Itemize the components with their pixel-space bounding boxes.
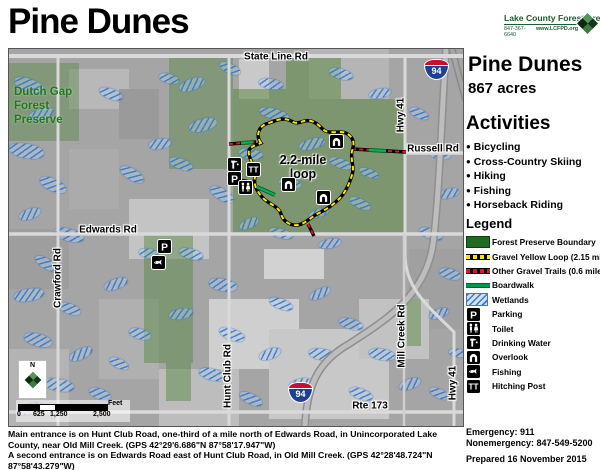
edwards-rd-label: Edwards Rd — [79, 225, 137, 236]
parking-marker-icon: P — [157, 239, 172, 254]
nonemergency-number: Nonemergency: 847-549-5200 — [466, 438, 593, 449]
wetlands-swatch — [466, 293, 488, 306]
agency-name: Lake County Forest Preserves — [504, 13, 578, 25]
boardwalk-swatch — [466, 283, 490, 288]
activities-heading: Activities — [466, 113, 550, 135]
scale-unit: Feet — [108, 400, 122, 407]
map-canvas[interactable]: Dutch Gap Forest Preserve State Line Rd … — [8, 48, 464, 427]
legend-row: Boardwalk — [466, 278, 600, 292]
legend-row: TTHitching Post — [466, 379, 600, 393]
toilet-legend-icon — [466, 321, 481, 336]
legend-row: Forest Preserve Boundary — [466, 235, 600, 249]
scale-tick: 2,500 — [93, 411, 111, 418]
hitching-post-legend-icon: TT — [466, 379, 481, 394]
hwy-41-bottom-label: Hwy 41 — [448, 366, 459, 400]
overlook-legend-icon — [466, 350, 481, 365]
emergency-info: Emergency: 911 Nonemergency: 847-549-520… — [466, 427, 593, 449]
legend-row: Toilet — [466, 321, 600, 335]
agency-logo-block: Lake County Forest Preserves 847-367-664… — [504, 13, 578, 38]
hitching-post-marker-icon: TT — [246, 162, 261, 177]
compass-diamond-icon — [24, 372, 41, 389]
fishing-legend-icon — [466, 364, 481, 379]
preserve-name: Pine Dunes — [468, 53, 582, 77]
toilet-marker-icon — [238, 180, 253, 195]
crawford-rd-label: Crawford Rd — [53, 248, 64, 308]
legend-row: Other Gravel Trails (0.6 miles) — [466, 264, 600, 278]
scale-tick: 0 — [17, 411, 21, 418]
activity-item: ● Bicycling — [466, 140, 582, 155]
forest-boundary-swatch — [466, 236, 490, 248]
overlook-marker-icon — [329, 134, 344, 149]
fishing-marker-icon — [151, 255, 166, 270]
activity-item: ● Fishing — [466, 184, 582, 199]
hunt-club-rd-label: Hunt Club Rd — [223, 344, 234, 408]
svg-text:P: P — [161, 242, 168, 253]
yellow-loop-swatch — [466, 254, 490, 260]
activity-item: ● Horseback Riding — [466, 198, 582, 213]
drinking-water-marker-icon — [227, 157, 242, 172]
scale-bar-graphic — [18, 404, 108, 411]
entrance-line-2: A second entrance is on Edwards Road eas… — [8, 450, 456, 470]
entrance-directions: Main entrance is on Hunt Club Road, one-… — [8, 429, 456, 470]
emergency-number: Emergency: 911 — [466, 427, 593, 438]
scale-tick: 625 — [33, 411, 45, 418]
overlook-marker-icon — [316, 190, 331, 205]
agency-phone: 847-367-6640 — [504, 26, 536, 38]
prepared-date: Prepared 16 November 2015 — [466, 454, 587, 464]
hwy-41-top-label: Hwy 41 — [396, 98, 407, 132]
scale-tick: 1,250 — [50, 411, 68, 418]
page-title: Pine Dunes — [8, 2, 189, 42]
legend-row: Fishing — [466, 365, 600, 379]
svg-text:TT: TT — [469, 382, 479, 391]
russell-rd-label: Russell Rd — [407, 144, 459, 155]
gravel-trail-swatch — [466, 268, 490, 274]
map-document: Pine Dunes Lake County Forest Preserves … — [0, 0, 600, 470]
activity-item: ● Hiking — [466, 169, 582, 184]
rte-173-label: Rte 173 — [352, 401, 388, 412]
legend-row: Overlook — [466, 350, 600, 364]
preserve-acres: 867 acres — [468, 80, 536, 97]
parking-legend-icon: P — [466, 307, 481, 322]
svg-text:P: P — [470, 310, 477, 321]
legend-row: Gravel Yellow Loop (2.15 miles) — [466, 249, 600, 263]
activities-list: ● Bicycling ● Cross-Country Skiing ● Hik… — [466, 140, 582, 213]
entrance-line-1: Main entrance is on Hunt Club Road, one-… — [8, 429, 456, 450]
drinking-water-legend-icon — [466, 335, 481, 350]
legend-row: PParking — [466, 307, 600, 321]
legend-row: Wetlands — [466, 293, 600, 307]
mill-creek-rd-label: Mill Creek Rd — [397, 304, 408, 367]
activity-item: ● Cross-Country Skiing — [466, 155, 582, 170]
state-line-rd-label: State Line Rd — [244, 52, 308, 63]
north-arrow: N — [18, 360, 47, 399]
legend-heading: Legend — [466, 216, 512, 231]
legend: Forest Preserve Boundary Gravel Yellow L… — [466, 235, 600, 393]
svg-text:TT: TT — [249, 166, 259, 175]
legend-row: Drinking Water — [466, 336, 600, 350]
overlook-marker-icon — [281, 177, 296, 192]
agency-website: www.LCFPD.org — [536, 26, 578, 38]
scale-bar: Feet 0 625 1,250 2,500 — [16, 400, 130, 422]
dutch-gap-label: Dutch Gap Forest Preserve — [14, 85, 80, 127]
